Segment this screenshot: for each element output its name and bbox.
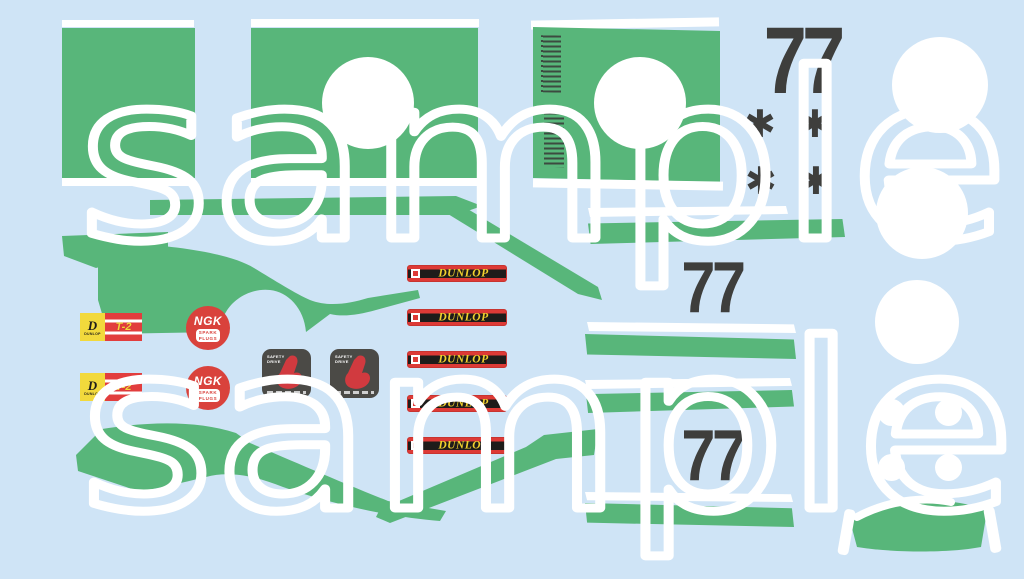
t2-code-text: T-2 [116, 381, 132, 393]
dunlop-strip-1: DUNLOP [407, 265, 507, 282]
dunlop-strip-text: DUNLOP [421, 311, 506, 323]
bottom-bar-3 [533, 178, 723, 190]
japan-flag-icon [411, 399, 420, 408]
dunlop-strip-2: DUNLOP [407, 309, 507, 326]
dunlop-strip-text: DUNLOP [421, 267, 506, 279]
ngk-logo-2: NGK SPARKPLUGS [184, 366, 232, 410]
ngk-sunburst: NGK SPARKPLUGS [186, 306, 230, 350]
safety-drive-badge-2: SAFETYDRIVE [330, 349, 379, 398]
top-bar-1 [62, 20, 194, 27]
top-bar-2 [251, 19, 479, 27]
decal-sheet: 77 ✱ ✱ ✱ ✱ D DUNLOP T-2 D DUNLOP T-2 [0, 0, 1024, 579]
dot-4 [935, 454, 962, 481]
safety-drive-badge-1: SAFETYDRIVE [262, 349, 311, 398]
sill-stripe-green-c [586, 390, 794, 413]
vent-hatch-lower [544, 107, 564, 167]
roundel-panel-2 [322, 57, 414, 149]
dot-3 [878, 454, 905, 481]
dunlop-d-emblem: D DUNLOP [80, 373, 105, 401]
ngk-subtext: SPARKPLUGS [196, 329, 221, 342]
dunlop-d-letter: D [88, 319, 97, 332]
star-icon-2: ✱ [799, 105, 831, 143]
japan-flag-icon [411, 355, 420, 364]
t2-stripes: T-2 [105, 373, 142, 401]
race-number-middle: 77 [676, 256, 747, 320]
vent-hatch-upper [541, 35, 561, 92]
dunlop-t2-logo-2: D DUNLOP T-2 [80, 373, 142, 401]
dunlop-t2-brand-text: DUNLOP [84, 332, 101, 336]
dunlop-t2-brand-text: DUNLOP [84, 392, 101, 396]
ngk-subtext: SPARKPLUGS [196, 389, 221, 402]
roundel-panel-3 [594, 57, 686, 149]
t2-code-text: T-2 [116, 321, 132, 333]
dunlop-d-emblem: D DUNLOP [80, 313, 105, 341]
ngk-brand-text: NGK [194, 374, 222, 388]
race-number-top: 77 [758, 18, 847, 104]
star-icon-3: ✱ [745, 162, 777, 200]
ngk-logo-1: NGK SPARKPLUGS [184, 306, 232, 350]
safety-badge-text: SAFETYDRIVE [335, 354, 353, 364]
dunlop-strip-text: DUNLOP [421, 397, 506, 409]
race-number-bottom: 77 [675, 424, 750, 488]
dunlop-strip-text: DUNLOP [421, 353, 506, 365]
sill-stripe-green-a [588, 219, 845, 244]
safety-badge-fineprint [335, 391, 374, 394]
ngk-sunburst: NGK SPARKPLUGS [186, 366, 230, 410]
green-panel-1 [62, 28, 195, 178]
t2-stripes: T-2 [105, 313, 142, 341]
japan-flag-icon [411, 313, 420, 322]
dunlop-d-letter: D [88, 379, 97, 392]
bottom-bar-2 [251, 178, 478, 186]
dunlop-strip-4: DUNLOP [407, 395, 507, 412]
dunlop-t2-logo-1: D DUNLOP T-2 [80, 313, 142, 341]
star-icon-4: ✱ [800, 162, 832, 200]
bottom-bar-1 [62, 178, 194, 186]
safety-badge-text: SAFETYDRIVE [267, 354, 285, 364]
sill-stripe-green-b [585, 334, 796, 359]
roundel-right-1 [892, 37, 988, 133]
star-icon-1: ✱ [744, 105, 776, 143]
sill-stripe-white-c [585, 378, 792, 389]
roundel-right-2 [876, 167, 968, 259]
ngk-brand-text: NGK [194, 314, 222, 328]
dunlop-strip-3: DUNLOP [407, 351, 507, 368]
safety-badge-fineprint [267, 391, 306, 394]
sill-stripe-white-a [588, 206, 788, 217]
japan-flag-icon [411, 269, 420, 278]
cowl-piece [835, 495, 1010, 565]
dot-2 [935, 399, 962, 426]
car-silhouette-upper [58, 192, 618, 342]
roundel-right-3 [875, 280, 959, 364]
dot-1 [878, 399, 905, 426]
car-silhouette-lower [58, 415, 618, 535]
